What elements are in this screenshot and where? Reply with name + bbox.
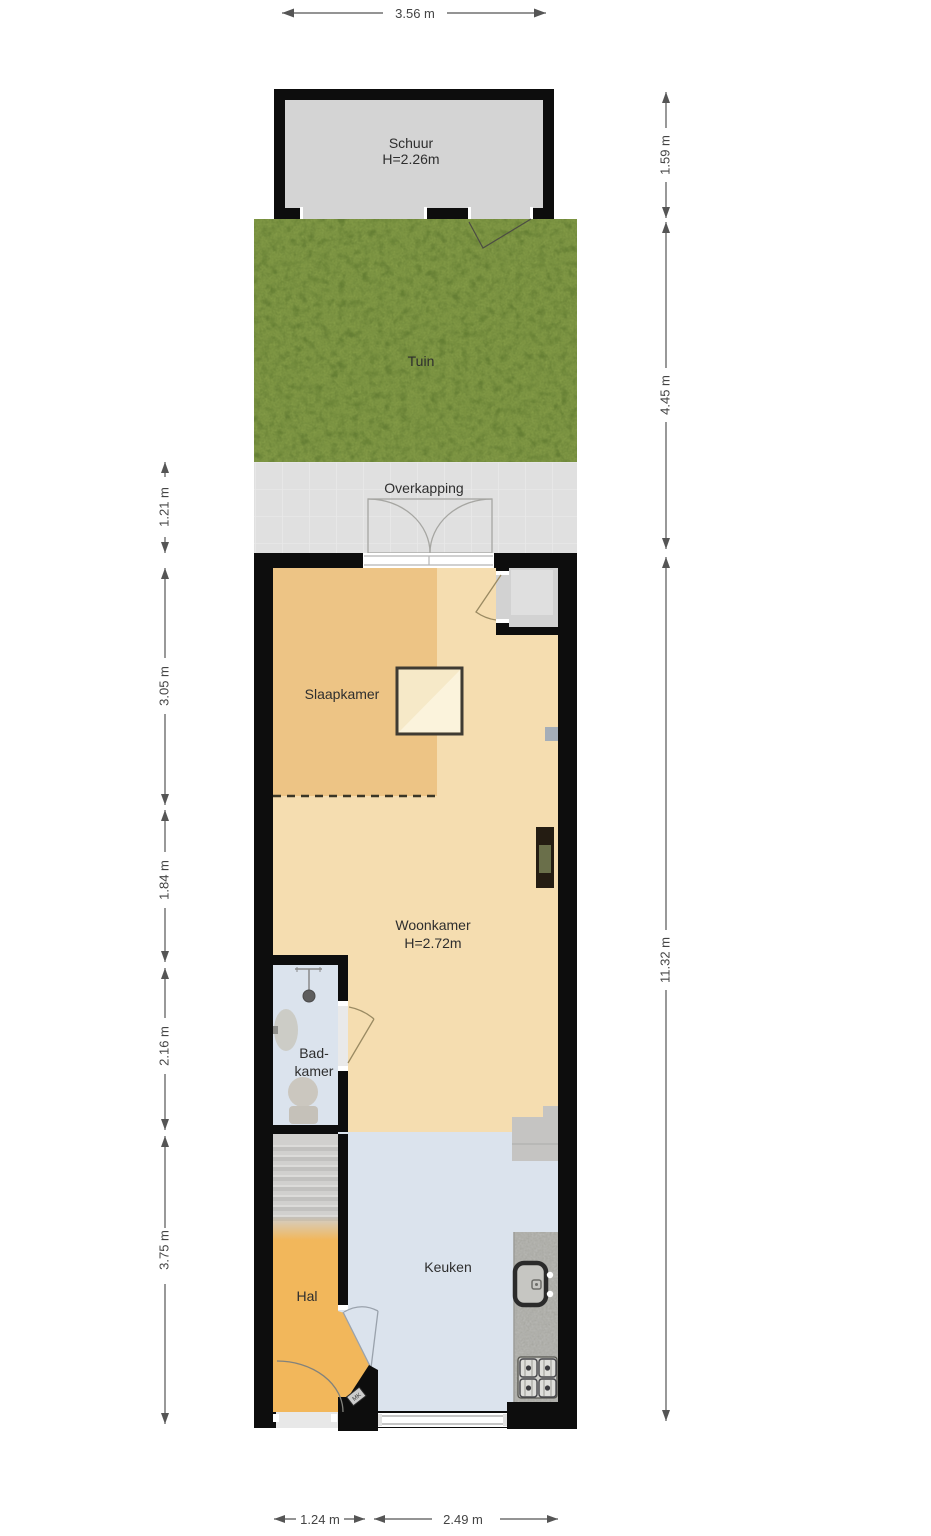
svg-text:2.16 m: 2.16 m [156, 1026, 171, 1066]
svg-text:1.59 m: 1.59 m [657, 135, 672, 175]
svg-text:Woonkamer: Woonkamer [395, 917, 471, 933]
svg-text:Tuin: Tuin [408, 353, 435, 369]
svg-text:Hal: Hal [296, 1288, 317, 1304]
svg-text:Overkapping: Overkapping [384, 480, 463, 496]
svg-text:H=2.72m: H=2.72m [404, 935, 461, 951]
svg-text:4.45 m: 4.45 m [657, 375, 672, 415]
svg-text:Slaapkamer: Slaapkamer [305, 686, 380, 702]
svg-text:3.75 m: 3.75 m [156, 1230, 171, 1270]
svg-text:1.84 m: 1.84 m [156, 860, 171, 900]
svg-text:2.49 m: 2.49 m [443, 1512, 483, 1527]
svg-text:H=2.26m: H=2.26m [382, 151, 439, 167]
svg-text:1.24 m: 1.24 m [300, 1512, 340, 1527]
svg-text:11.32 m: 11.32 m [657, 937, 672, 983]
svg-text:3.05 m: 3.05 m [156, 666, 171, 706]
svg-text:1.21 m: 1.21 m [156, 487, 171, 527]
svg-text:kamer: kamer [295, 1063, 334, 1079]
svg-text:Bad-: Bad- [299, 1045, 329, 1061]
svg-text:Schuur: Schuur [389, 135, 434, 151]
svg-text:Keuken: Keuken [424, 1259, 471, 1275]
svg-text:3.56 m: 3.56 m [395, 6, 435, 21]
